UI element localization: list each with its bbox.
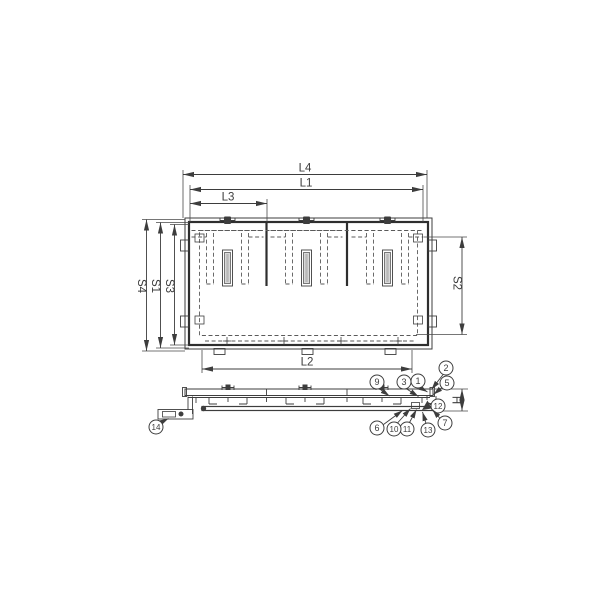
stiffener	[209, 398, 247, 405]
dim-label-L3: L3	[222, 192, 235, 204]
dim-label-L2: L2	[301, 357, 314, 369]
panel-detail	[271, 217, 343, 287]
dimension-L4: L4	[183, 163, 427, 219]
svg-text:12: 12	[434, 402, 443, 411]
stiffener	[286, 398, 324, 405]
svg-text:13: 13	[424, 426, 433, 435]
svg-text:11: 11	[403, 425, 412, 434]
dim-label-S2: S2	[451, 276, 463, 290]
panel-detail	[352, 217, 424, 287]
dim-label-S3: S3	[163, 279, 175, 293]
stiffener-ticks	[196, 398, 422, 404]
svg-text:7: 7	[442, 418, 447, 428]
dim-label-L1: L1	[300, 178, 313, 190]
balloon-callouts: 9 3 1 2 5 12 7	[149, 361, 454, 437]
dimension-S2: S2	[416, 237, 467, 335]
balloon-7: 7	[433, 410, 453, 431]
balloon-14: 14	[149, 419, 169, 435]
left-end-bracket	[158, 397, 193, 420]
svg-text:10: 10	[390, 425, 399, 434]
section-view: H	[158, 385, 468, 420]
anchor-bolt-icon	[201, 406, 206, 411]
stiffener	[363, 398, 401, 405]
technical-drawing: L4 L1 L3 S4 S1 S3 S2 L2	[0, 0, 600, 600]
dim-label-H: H	[450, 396, 462, 404]
svg-text:2: 2	[443, 363, 448, 373]
svg-text:1: 1	[415, 376, 420, 386]
svg-text:6: 6	[374, 423, 379, 433]
bottom-rail	[202, 407, 436, 411]
dim-label-L4: L4	[299, 163, 312, 175]
svg-text:3: 3	[401, 377, 406, 387]
dimension-L2: L2	[202, 350, 412, 373]
balloon-9: 9	[370, 375, 390, 396]
plan-view	[181, 217, 437, 355]
svg-text:9: 9	[374, 377, 379, 387]
panel-detail	[192, 217, 264, 287]
balloon-5: 5	[434, 376, 455, 395]
dim-label-S1: S1	[149, 279, 161, 293]
balloon-11: 11	[400, 410, 417, 437]
balloon-13: 13	[421, 412, 435, 437]
svg-text:5: 5	[444, 378, 449, 388]
svg-text:14: 14	[152, 423, 161, 432]
dim-label-S4: S4	[135, 279, 147, 294]
